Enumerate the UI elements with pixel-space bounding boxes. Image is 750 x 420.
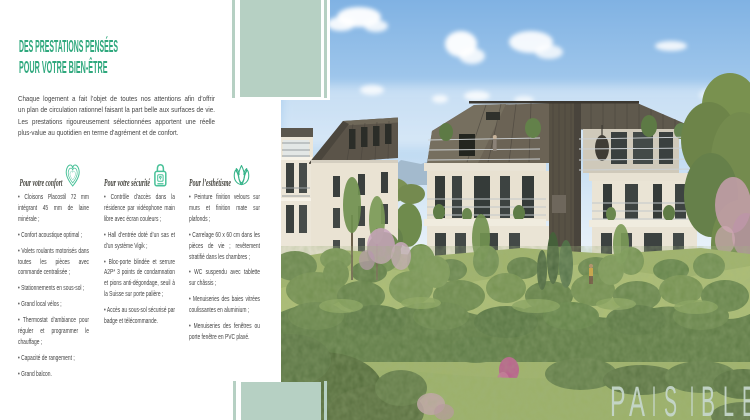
svg-text:Pour l’esthétisme: Pour l’esthétisme	[189, 177, 231, 189]
svg-text:I: I	[652, 378, 656, 420]
svg-text:S: S	[664, 378, 677, 420]
svg-text:I: I	[690, 378, 694, 420]
svg-text:L: L	[723, 378, 734, 420]
svg-text:POUR VOTRE BIEN-ÊTRE: POUR VOTRE BIEN-ÊTRE	[19, 56, 108, 77]
svg-text:E: E	[742, 378, 750, 420]
svg-text:B: B	[701, 378, 715, 420]
svg-text:A: A	[629, 378, 645, 420]
svg-text:Pour votre confort: Pour votre confort	[20, 177, 63, 189]
svg-text:Pour votre sécurité: Pour votre sécurité	[104, 177, 151, 189]
svg-text:DES PRESTATIONS PENSÉES: DES PRESTATIONS PENSÉES	[19, 35, 118, 56]
svg-text:P: P	[610, 378, 626, 420]
